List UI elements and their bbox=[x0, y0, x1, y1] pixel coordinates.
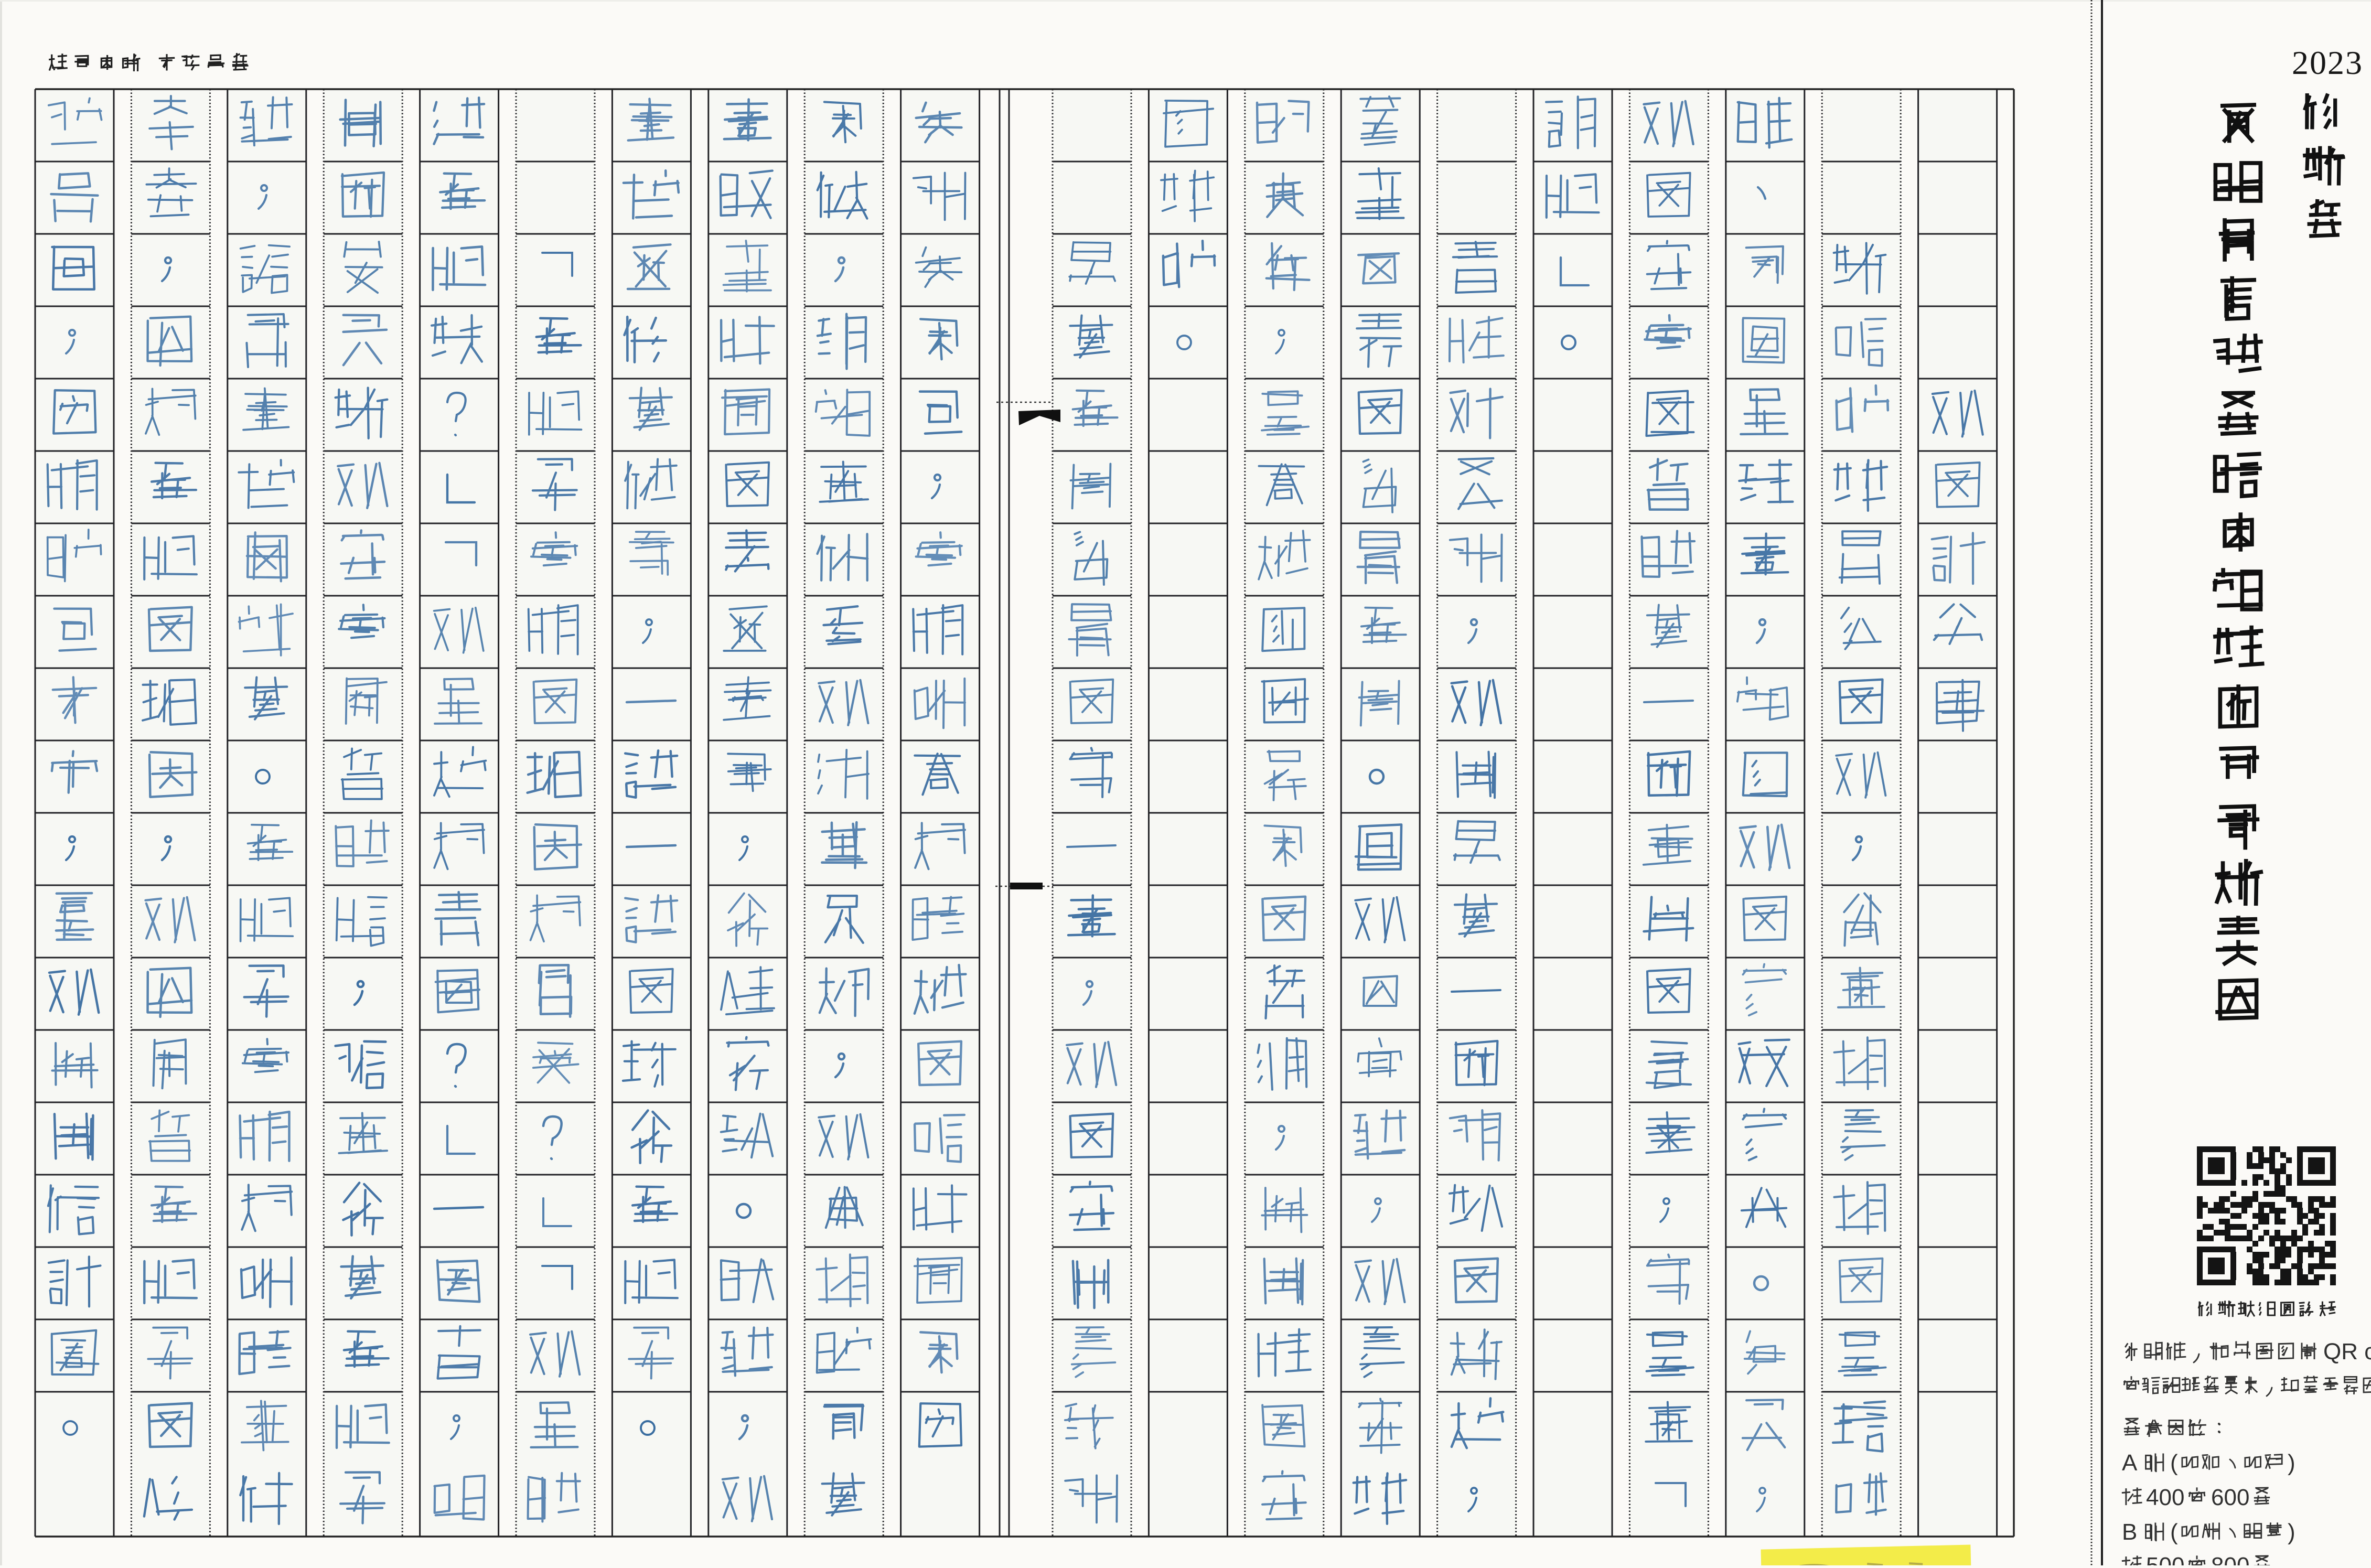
svg-text:2023: 2023 bbox=[2292, 44, 2363, 81]
svg-text:): ) bbox=[2288, 1519, 2295, 1545]
svg-text:): ) bbox=[2288, 1450, 2295, 1476]
svg-text:B: B bbox=[2122, 1519, 2137, 1545]
svg-text:(: ( bbox=[2170, 1450, 2178, 1476]
svg-text:500: 500 bbox=[2146, 1553, 2184, 1565]
svg-text:400: 400 bbox=[2146, 1485, 2184, 1510]
svg-text:800: 800 bbox=[2211, 1553, 2249, 1565]
svg-text:(: ( bbox=[2170, 1519, 2178, 1545]
svg-text:A: A bbox=[2122, 1450, 2138, 1476]
svg-text:QR code: QR code bbox=[2323, 1339, 2371, 1365]
svg-text:600: 600 bbox=[2211, 1485, 2249, 1510]
